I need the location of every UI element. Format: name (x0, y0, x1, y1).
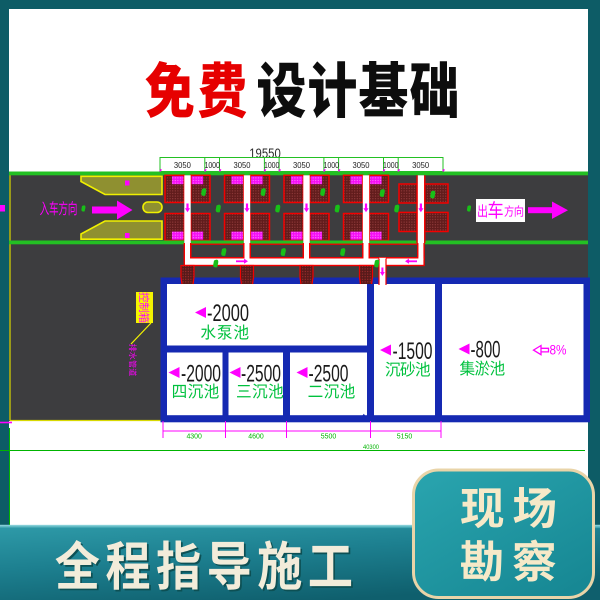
svg-text:8%: 8% (550, 342, 567, 358)
svg-text:-2500: -2500 (241, 361, 281, 388)
svg-text:3050: 3050 (174, 160, 191, 170)
svg-text:3050: 3050 (412, 160, 429, 170)
svg-text:5500: 5500 (321, 434, 337, 441)
svg-text:1000: 1000 (204, 160, 220, 170)
svg-text:3050: 3050 (234, 160, 251, 170)
svg-text:3050: 3050 (293, 160, 310, 170)
svg-text:1000: 1000 (264, 160, 280, 170)
svg-text:-2000: -2000 (207, 300, 249, 327)
svg-text:-2000: -2000 (181, 361, 221, 388)
svg-text:1000: 1000 (383, 160, 399, 170)
svg-text:19550: 19550 (249, 145, 281, 161)
svg-text:5150: 5150 (397, 434, 413, 441)
svg-text:1000: 1000 (324, 160, 340, 170)
svg-text:40300: 40300 (363, 444, 379, 451)
svg-text:4300: 4300 (186, 434, 202, 441)
svg-text:4600: 4600 (248, 434, 264, 441)
svg-text:-1500: -1500 (393, 338, 433, 365)
svg-text:-2500: -2500 (309, 361, 349, 388)
svg-text:-800: -800 (471, 337, 501, 364)
svg-text:3050: 3050 (353, 160, 370, 170)
